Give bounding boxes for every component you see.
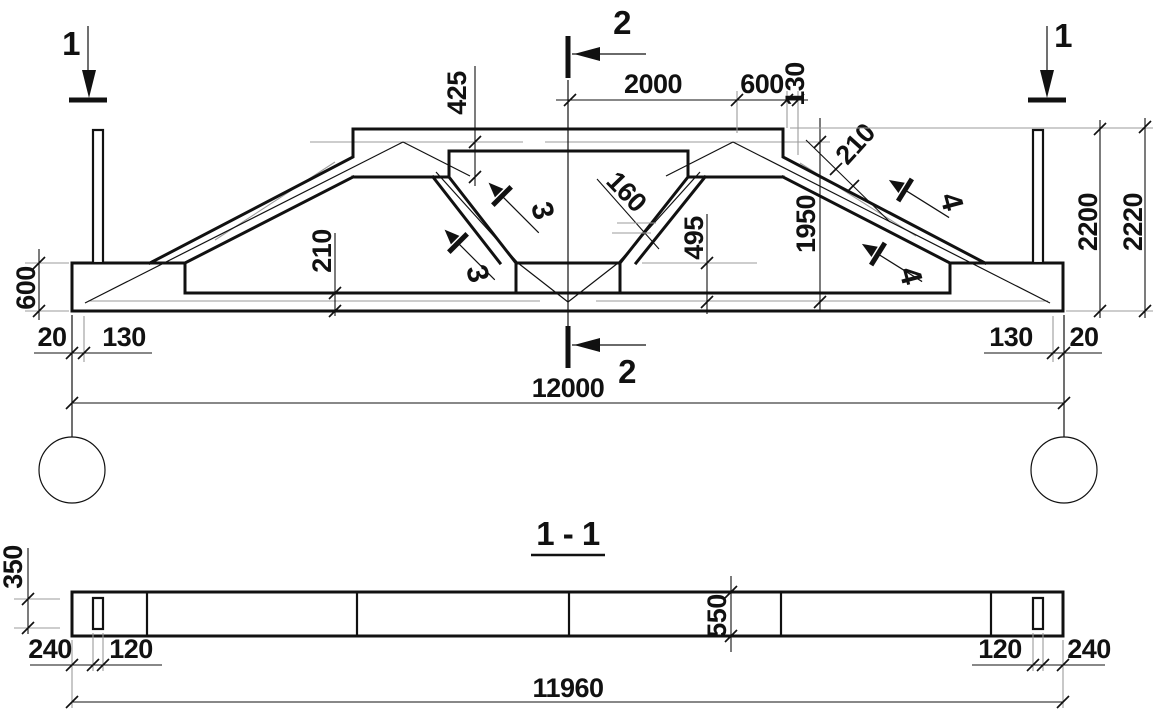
dim-label: 210: [307, 229, 337, 273]
dim-label: 2220: [1118, 193, 1148, 251]
section-1-1-view: 1 - 1 350: [0, 515, 1111, 708]
truss-drawing: 1 1 2 2 3: [0, 0, 1161, 718]
section-outline: [72, 592, 1063, 636]
dim-label: 600: [740, 69, 784, 99]
grid-bubble-right: [1031, 437, 1097, 503]
section-label: 3: [459, 261, 495, 285]
dim-12000: 12000: [66, 373, 1070, 409]
truss-drawing-page: 1 1 2 2 3: [0, 0, 1161, 718]
right-post: [1033, 130, 1043, 263]
dim-120-240-right: 120 240: [972, 633, 1111, 708]
section-label: 1: [1054, 17, 1072, 54]
section-title: 1 - 1: [536, 515, 600, 552]
dim-label: 2200: [1073, 193, 1103, 251]
dim-550: 550: [702, 576, 737, 652]
dim-160: 160: [597, 166, 659, 249]
left-diagonal: [433, 177, 500, 263]
dim-label: 120: [109, 634, 153, 664]
dim-label: 120: [978, 634, 1022, 664]
axis-lines: [85, 80, 1050, 326]
dim-label: 1950: [791, 195, 821, 253]
section-label: 1: [62, 25, 80, 62]
section-label: 3: [524, 198, 560, 222]
dim-600-end: 600: [11, 249, 69, 320]
left-post: [93, 130, 103, 263]
dim-495: 495: [642, 214, 757, 314]
dim-label: 350: [0, 545, 28, 589]
section-arrow-down-icon: [82, 70, 96, 98]
dim-label: 600: [11, 266, 41, 310]
section-marker-1-left: 1: [62, 25, 107, 100]
section-label: 4: [933, 189, 969, 214]
dim-label: 130: [989, 322, 1033, 352]
dim-240-120-left: 240 120: [28, 633, 162, 708]
section-arrow-left-icon: [574, 338, 600, 352]
section-marker-2-top: 2: [568, 4, 646, 78]
dim-1950: 1950: [791, 118, 826, 312]
dim-label: 550: [702, 594, 732, 638]
left-post-section: [93, 598, 103, 629]
section-label: 2: [613, 4, 631, 41]
elevation-view: 1 1 2 2 3: [11, 4, 1153, 503]
dim-label: 11960: [532, 673, 603, 703]
section-label: 2: [618, 353, 636, 390]
dim-label: 20: [37, 322, 66, 352]
section-label: 4: [892, 263, 928, 288]
dim-label: 12000: [532, 373, 605, 403]
dim-label: 130: [102, 322, 146, 352]
dim-210-chord: 210: [307, 229, 341, 317]
section-arrow-down-icon: [1040, 70, 1054, 98]
dim-label: 20: [1069, 322, 1098, 352]
dim-130-20-right: 130 20: [984, 316, 1102, 362]
dim-350: 350: [0, 545, 60, 634]
dim-top-chain: 2000 600 130: [556, 62, 810, 155]
dim-label: 2000: [624, 69, 682, 99]
dim-label: 495: [679, 216, 709, 260]
section-marker-4-lower: [855, 233, 929, 293]
dim-label: 130: [780, 62, 810, 106]
dim-label: 240: [1067, 634, 1111, 664]
right-post-section: [1033, 598, 1043, 629]
dim-label: 210: [830, 118, 881, 170]
grid-bubble-left: [39, 437, 105, 503]
section-arrow-left-icon: [574, 47, 600, 61]
dim-20-130-left: 20 130: [34, 316, 152, 362]
dim-11960: 11960: [66, 673, 1069, 708]
section-marker-1-right: 1: [1028, 17, 1072, 100]
dim-label: 160: [601, 166, 653, 218]
dim-label: 240: [28, 634, 72, 664]
dim-label: 425: [442, 71, 472, 115]
